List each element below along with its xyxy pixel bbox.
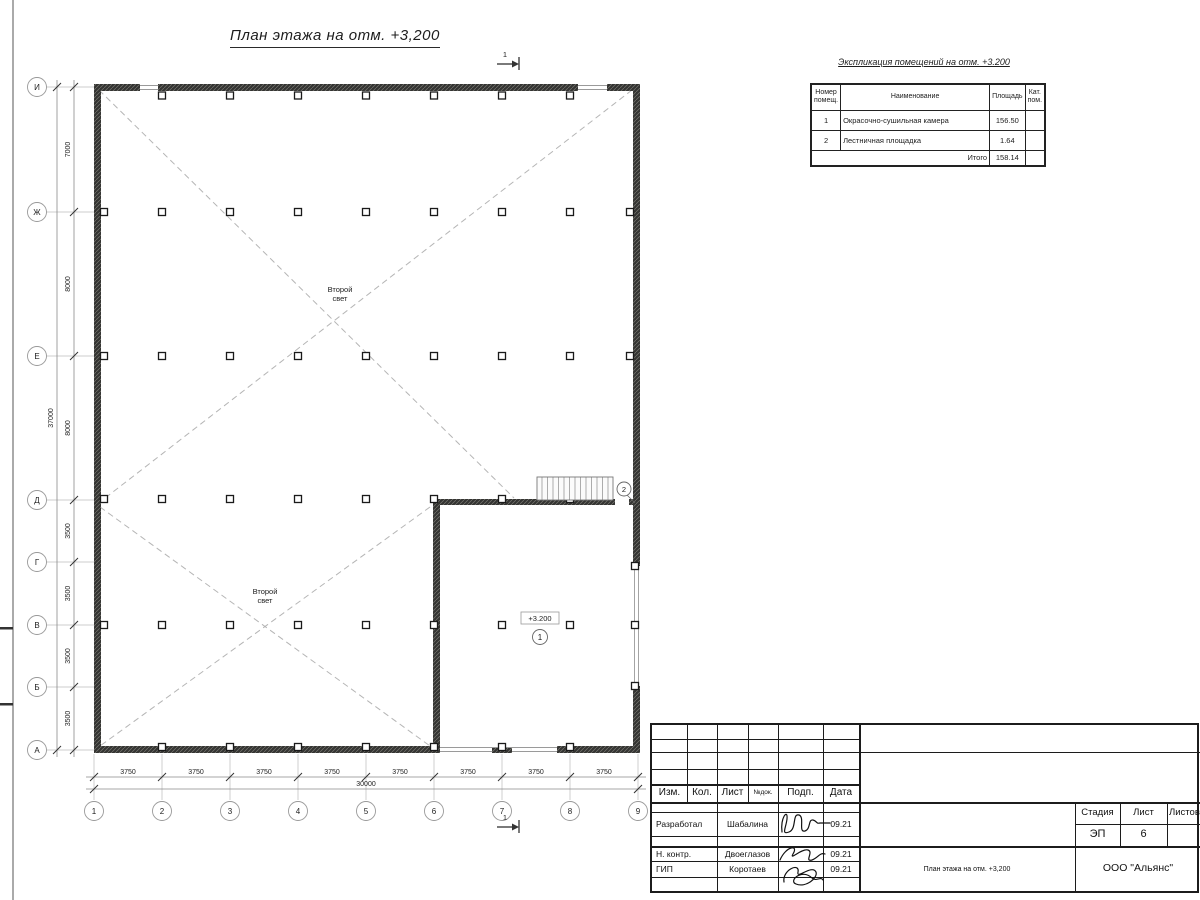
level-mark-value: +3.200: [528, 614, 551, 623]
tb-stage-label: Стадия: [1075, 808, 1120, 818]
svg-text:3750: 3750: [256, 769, 272, 776]
col-room-number: Номер помещ.: [811, 84, 841, 110]
svg-text:Е: Е: [34, 352, 39, 361]
tb-company: ООО "Альянс": [1075, 863, 1200, 874]
room-number: 1: [811, 110, 841, 130]
tb-sheets-label: Листов: [1167, 808, 1200, 818]
void-labels: Второй свет Второй свет: [253, 285, 353, 605]
svg-text:Г: Г: [35, 558, 40, 567]
tb-col-data: Дата: [823, 788, 859, 798]
room-area: 1.64: [990, 130, 1025, 150]
svg-text:8: 8: [568, 807, 573, 816]
tb-name-ncontr: Двоеглазов: [717, 850, 778, 859]
tb-sheet-label: Лист: [1120, 808, 1167, 818]
svg-text:Ж: Ж: [33, 208, 41, 217]
svg-text:3750: 3750: [596, 769, 612, 776]
void-cross-lines: [99, 90, 632, 746]
room-mark-2: 2: [617, 482, 635, 503]
svg-text:4: 4: [296, 807, 301, 816]
tb-sheet-number: 6: [1120, 829, 1167, 840]
tb-role-ncontr: Н. контр.: [656, 850, 716, 859]
svg-text:8000: 8000: [65, 276, 72, 292]
col-room-area: Площадь: [990, 84, 1025, 110]
svg-text:В: В: [34, 621, 39, 630]
svg-text:свет: свет: [332, 294, 348, 303]
svg-text:свет: свет: [257, 596, 273, 605]
explication-table: Номер помещ. Наименование Площадь Кат. п…: [810, 83, 1046, 167]
tb-name-gip: Коротаев: [717, 865, 778, 874]
svg-text:Второй: Второй: [328, 285, 353, 294]
stairs: [537, 477, 613, 500]
columns-grid: [101, 92, 639, 751]
tb-role-gip: ГИП: [656, 865, 716, 874]
room-cat: [1025, 110, 1045, 130]
total-cat: [1025, 150, 1045, 166]
total-area: 158.14: [990, 150, 1025, 166]
dim-bottom-total: 30000: [356, 781, 376, 788]
room-2-number: 2: [622, 485, 626, 494]
svg-text:7000: 7000: [65, 142, 72, 158]
sheet-frame-left: [0, 0, 13, 900]
svg-text:3750: 3750: [392, 769, 408, 776]
dimensions-bottom: 3750 3750 3750 3750 3750 3750 3750 3750 …: [86, 754, 646, 800]
svg-text:3750: 3750: [460, 769, 476, 776]
signatures: [772, 802, 834, 891]
svg-text:3750: 3750: [188, 769, 204, 776]
svg-text:2: 2: [160, 807, 165, 816]
floor-plan: 2 +3.200 1 Второй свет Второй свет 7000 …: [0, 0, 680, 900]
explication-title: Экспликация помещений на отм. +3.200: [806, 57, 1042, 67]
svg-text:1: 1: [503, 813, 507, 822]
room-cat: [1025, 130, 1045, 150]
tb-col-ndok: №док.: [748, 790, 778, 797]
svg-text:1: 1: [92, 807, 97, 816]
table-row: 2 Лестничная площадка 1.64: [811, 130, 1045, 150]
svg-text:3500: 3500: [65, 523, 72, 539]
signature-ncontr: [780, 848, 825, 861]
tb-role-developer: Разработал: [656, 820, 716, 829]
tb-col-kol: Кол.: [687, 788, 717, 798]
svg-text:И: И: [34, 83, 40, 92]
table-row: 1 Окрасочно-сушильная камера 156.50: [811, 110, 1045, 130]
svg-text:3750: 3750: [324, 769, 340, 776]
col-room-name: Наименование: [841, 84, 990, 110]
tb-doc-name: План этажа на отм. +3,200: [859, 866, 1075, 873]
tb-col-izm: Изм.: [652, 788, 687, 798]
table-total-row: Итого 158.14: [811, 150, 1045, 166]
svg-text:9: 9: [636, 807, 641, 816]
svg-text:3500: 3500: [65, 711, 72, 727]
svg-text:6: 6: [432, 807, 437, 816]
dimensions-left: 7000 8000 8000 3500 3500 3500 3500 37000: [46, 80, 94, 757]
svg-text:3500: 3500: [65, 648, 72, 664]
svg-text:3500: 3500: [65, 586, 72, 602]
axis-bubbles-bottom: 1 2 3 4 5 6 7 8 9: [85, 802, 648, 821]
tb-col-list: Лист: [717, 788, 748, 798]
drawing-sheet: { "sheet": { "plan_title": "План этажа н…: [0, 0, 1200, 900]
level-mark: +3.200 1: [521, 612, 559, 645]
tb-stage-value: ЭП: [1075, 829, 1120, 840]
total-label: Итого: [811, 150, 990, 166]
title-block: Изм. Кол. Лист №док. Подп. Дата Разработ…: [650, 723, 1199, 893]
explication-header-row: Номер помещ. Наименование Площадь Кат. п…: [811, 84, 1045, 110]
room-area: 156.50: [990, 110, 1025, 130]
signature-gip: [784, 867, 823, 884]
svg-text:8000: 8000: [65, 420, 72, 436]
svg-text:5: 5: [364, 807, 369, 816]
signature-developer: [782, 814, 830, 832]
col-room-cat: Кат. пом.: [1025, 84, 1045, 110]
svg-text:Б: Б: [34, 683, 39, 692]
room-1-number: 1: [538, 633, 543, 642]
svg-text:Второй: Второй: [253, 587, 278, 596]
svg-text:3750: 3750: [120, 769, 136, 776]
svg-text:3750: 3750: [528, 769, 544, 776]
dim-left-total: 37000: [48, 408, 55, 428]
walls: [94, 84, 640, 753]
svg-text:3: 3: [228, 807, 233, 816]
tb-name-developer: Шабалина: [717, 820, 778, 829]
svg-text:Д: Д: [34, 496, 40, 505]
section-mark-top: 1: [497, 50, 519, 70]
room-name: Окрасочно-сушильная камера: [841, 110, 990, 130]
room-number: 2: [811, 130, 841, 150]
svg-text:1: 1: [503, 50, 507, 59]
svg-text:А: А: [34, 746, 40, 755]
room-name: Лестничная площадка: [841, 130, 990, 150]
tb-col-podp: Подп.: [778, 788, 823, 798]
axis-bubbles-left: И Ж Е Д Г В Б А: [28, 78, 47, 760]
